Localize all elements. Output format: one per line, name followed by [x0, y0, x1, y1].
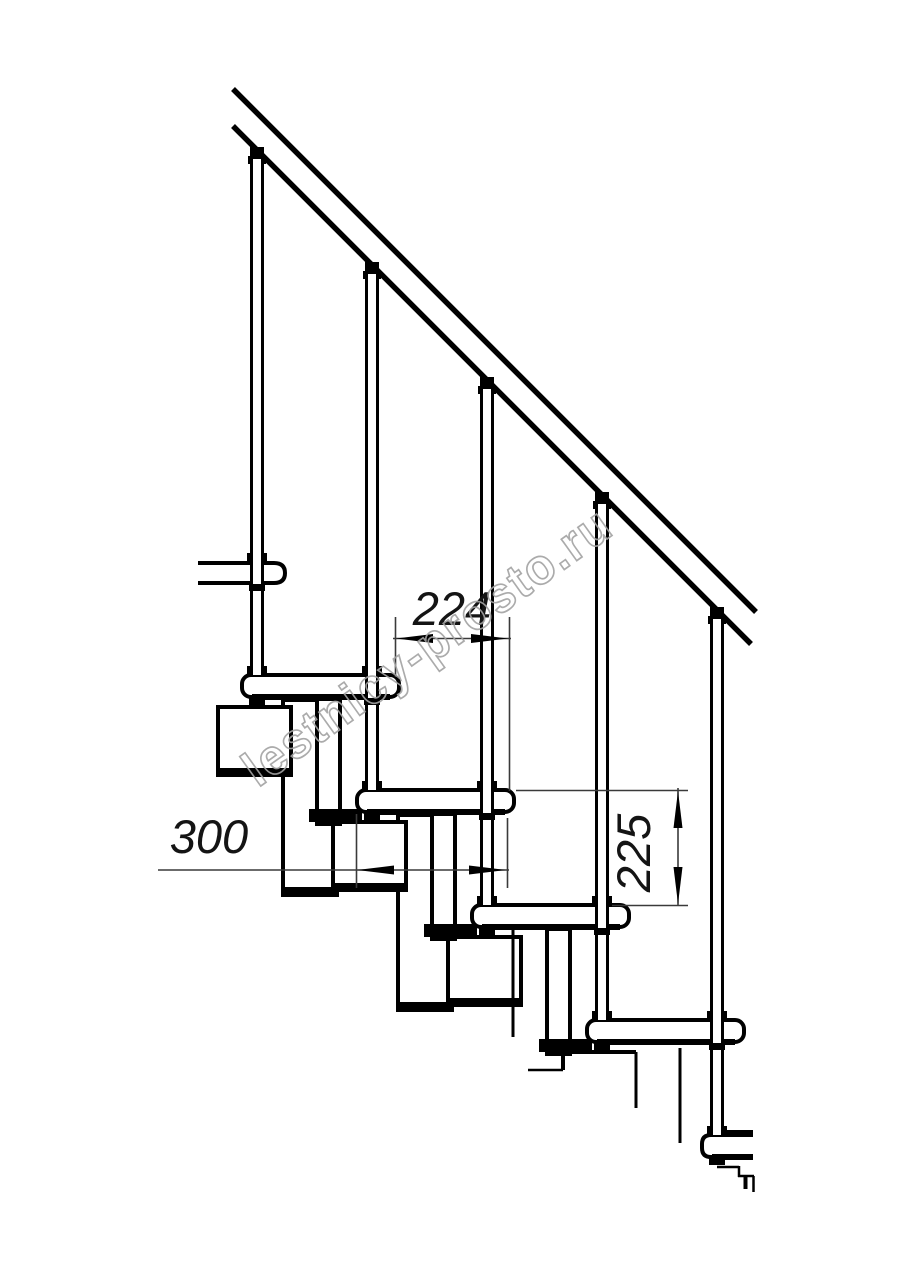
baluster-inner: [713, 619, 721, 1135]
module-box: [333, 822, 406, 890]
baluster-inner: [483, 389, 491, 905]
fastener-tab: [479, 813, 495, 820]
fastener-tab: [709, 1043, 725, 1050]
module-post: [547, 929, 570, 1054]
module-flange: [424, 924, 477, 937]
fastener-tab: [594, 928, 610, 935]
module-box-bottom: [285, 887, 335, 895]
module-flange: [309, 809, 362, 822]
fastener-tab: [479, 928, 495, 935]
fastener-tab: [249, 698, 265, 705]
module-box-bottom: [449, 998, 520, 1006]
module-box-bottom: [334, 883, 405, 891]
fastener-tab: [249, 584, 265, 591]
dim-tread-depth-label: 300: [170, 810, 248, 863]
tread: [702, 1135, 753, 1157]
fastener-tab: [709, 1158, 725, 1165]
staircase-drawing-page: 224 300 225 lestnicy-prosto.ru: [0, 0, 914, 1280]
fastener-tab: [594, 1043, 610, 1050]
upper-tread-stub: [198, 563, 285, 583]
module-box-bottom: [400, 1002, 450, 1010]
module-box: [448, 937, 521, 1005]
staircase-side-view-drawing: 224 300 225 lestnicy-prosto.ru: [0, 0, 914, 1280]
baluster-inner: [598, 504, 606, 1020]
module-post: [432, 814, 455, 939]
dim-riser-label: 225: [607, 813, 660, 893]
baluster-inner: [253, 159, 261, 675]
fastener-tab: [364, 813, 380, 820]
